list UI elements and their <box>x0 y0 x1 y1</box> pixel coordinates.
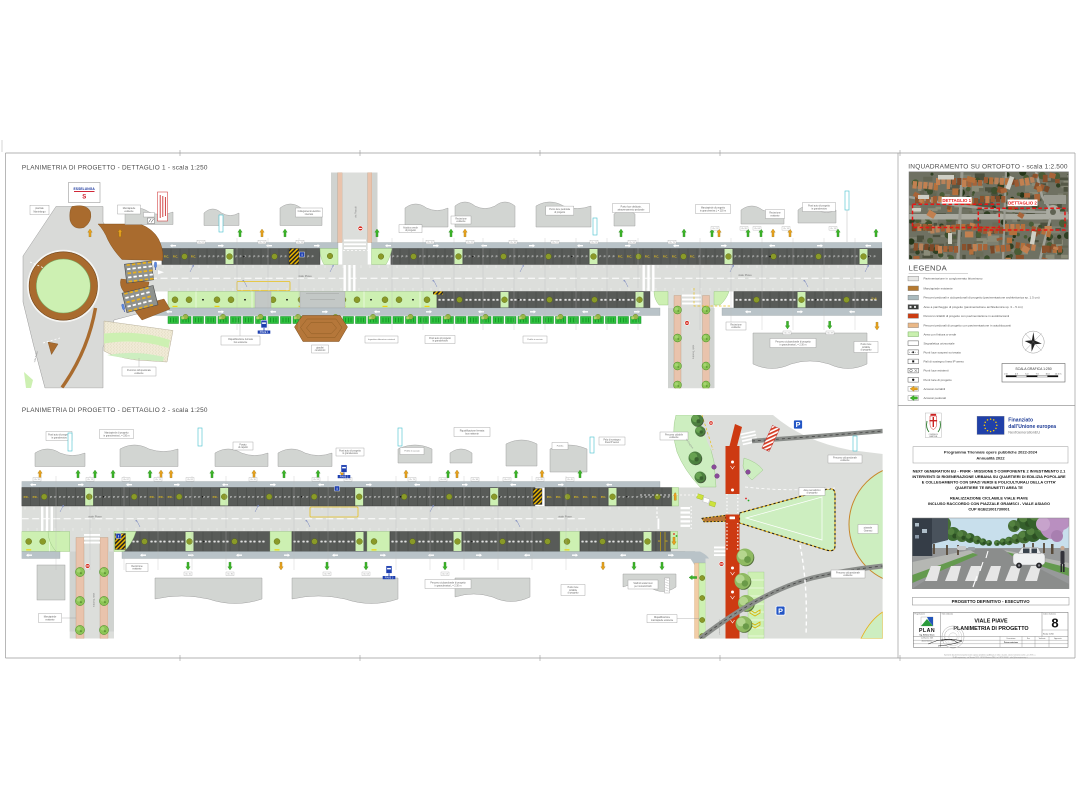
svg-text:Rev.: Rev. <box>1027 638 1031 640</box>
svg-text:P.C.: P.C. <box>24 495 29 499</box>
svg-text:P: P <box>199 255 201 259</box>
svg-text:Ch. 41: Ch. 41 <box>467 242 473 244</box>
svg-text:P: P <box>324 495 326 499</box>
svg-text:Titolo elaborato: Titolo elaborato <box>942 613 954 616</box>
svg-text:P: P <box>734 255 736 259</box>
svg-text:P: P <box>374 495 376 499</box>
svg-text:via Pascoli: via Pascoli <box>355 206 358 218</box>
svg-text:P: P <box>189 495 191 499</box>
svg-text:giardini: giardini <box>316 346 324 349</box>
svg-text:P: P <box>338 495 340 499</box>
svg-text:P: P <box>623 495 625 499</box>
svg-text:P: P <box>518 255 520 259</box>
svg-text:interrato: interrato <box>305 213 314 216</box>
svg-text:Posti auto di progetto: Posti auto di progetto <box>808 204 830 207</box>
svg-text:P: P <box>757 255 759 259</box>
svg-text:Finanziato: Finanziato <box>1008 418 1033 424</box>
svg-text:P: P <box>464 495 466 499</box>
svg-text:Punto luce: Punto luce <box>568 586 580 589</box>
svg-text:P: P <box>856 255 858 259</box>
svg-text:Ch. 81: Ch. 81 <box>187 479 193 481</box>
svg-text:Ch. 99: Ch. 99 <box>324 574 330 576</box>
svg-text:P: P <box>257 495 259 499</box>
svg-text:PROGETTO DEFINITIVO - ESECUTIV: PROGETTO DEFINITIVO - ESECUTIVO <box>952 599 1031 604</box>
svg-text:INQUADRAMENTO SU ORTOFOTO - sc: INQUADRAMENTO SU ORTOFOTO - scala 1:2.50… <box>908 164 1068 171</box>
svg-text:in granulessiva L = 2.30 m: in granulessiva L = 2.30 m <box>435 584 462 587</box>
svg-text:Ch. 63: Ch. 63 <box>440 479 446 481</box>
svg-text:P: P <box>365 495 367 499</box>
svg-text:P: P <box>851 255 853 259</box>
svg-text:P: P <box>144 495 146 499</box>
svg-text:P: P <box>796 420 801 429</box>
svg-text:Ch. 45: Ch. 45 <box>567 479 573 481</box>
svg-text:condomini: condomini <box>315 350 326 352</box>
svg-text:P: P <box>618 495 620 499</box>
svg-text:P: P <box>207 495 209 499</box>
svg-text:LEGENDA: LEGENDA <box>909 264 948 273</box>
svg-text:8: 8 <box>1051 616 1058 631</box>
svg-text:Riqualificazione fermata: Riqualificazione fermata <box>228 338 253 341</box>
svg-text:P: P <box>446 255 448 259</box>
svg-text:P: P <box>387 495 389 499</box>
svg-text:Percorso ciclopedonale: Percorso ciclopedonale <box>127 369 152 372</box>
svg-text:di progetto: di progetto <box>568 592 580 595</box>
svg-text:Ch. 64: Ch. 64 <box>754 228 760 230</box>
svg-text:Ch. 79: Ch. 79 <box>409 479 415 481</box>
svg-text:Ch. 96: Ch. 96 <box>629 242 635 244</box>
svg-text:P: P <box>279 495 281 499</box>
svg-text:P: P <box>59 495 61 499</box>
svg-text:piazzale: piazzale <box>864 527 873 529</box>
svg-text:P: P <box>240 255 242 259</box>
svg-text:i: i <box>118 533 119 538</box>
svg-text:P: P <box>833 255 835 259</box>
svg-text:P: P <box>788 255 790 259</box>
svg-text:o: o <box>958 633 959 635</box>
svg-text:Ing. Stefano Sauro: Ing. Stefano Sauro <box>920 633 935 636</box>
svg-text:P.C.: P.C. <box>164 255 169 259</box>
svg-text:P: P <box>829 255 831 259</box>
svg-text:esistente: esistente <box>456 220 466 223</box>
svg-text:P: P <box>423 495 425 499</box>
svg-text:P: P <box>432 495 434 499</box>
svg-text:PIAVE 2: PIAVE 2 <box>340 475 349 478</box>
svg-text:DETTAGLIO 2: DETTAGLIO 2 <box>1008 201 1037 206</box>
svg-text:P: P <box>522 495 524 499</box>
svg-text:P: P <box>369 495 371 499</box>
svg-text:P: P <box>401 255 403 259</box>
svg-text:o: o <box>945 635 946 637</box>
svg-text:Punto luce: Punto luce <box>861 343 873 346</box>
svg-text:esistente: esistente <box>669 436 679 439</box>
svg-text:P: P <box>320 495 322 499</box>
svg-text:P: P <box>608 255 610 259</box>
svg-text:P: P <box>532 255 534 259</box>
svg-text:Percorsi pedonali e ciclopedon: Percorsi pedonali e ciclopedonali di pro… <box>924 296 1040 300</box>
svg-text:di progetto: di progetto <box>554 211 566 214</box>
svg-text:ciclabile: ciclabile <box>569 590 578 592</box>
svg-text:P: P <box>599 255 601 259</box>
svg-text:Pali di sostegno linea IP aere: Pali di sostegno linea IP aereo <box>924 360 965 364</box>
svg-text:Riqualificazione fermata: Riqualificazione fermata <box>460 429 485 432</box>
svg-text:P: P <box>604 255 606 259</box>
svg-text:INTERVENTI DI RIGENERAZIONE UR: INTERVENTI DI RIGENERAZIONE URBANA SU QU… <box>912 474 1066 479</box>
svg-text:Posti auto di progetto: Posti auto di progetto <box>48 433 70 436</box>
svg-text:SCALA GRAFICA 1:250: SCALA GRAFICA 1:250 <box>1015 367 1051 371</box>
svg-text:Percorso ciclopedonale: Percorso ciclopedonale <box>833 456 858 459</box>
svg-text:P: P <box>239 495 241 499</box>
svg-text:Ch. 99: Ch. 99 <box>345 479 351 481</box>
svg-text:linea IP aereo: linea IP aereo <box>605 441 620 444</box>
svg-text:Marciapiede esistente: Marciapiede esistente <box>924 286 954 290</box>
svg-text:o: o <box>958 637 959 639</box>
svg-text:P: P <box>252 495 254 499</box>
svg-text:Pavimentazione in conglomerato: Pavimentazione in conglomerato bituminos… <box>924 277 983 281</box>
svg-text:P: P <box>496 255 498 259</box>
svg-text:P.C.: P.C. <box>601 495 606 499</box>
svg-text:P: P <box>234 495 236 499</box>
svg-text:Marciapiede di progetto: Marciapiede di progetto <box>104 431 129 434</box>
svg-text:Ch. 30: Ch. 30 <box>227 574 233 576</box>
svg-text:Annualità 2022: Annualità 2022 <box>976 455 1005 460</box>
svg-text:Marciapiede: Marciapiede <box>44 615 57 618</box>
svg-text:Ch. 21: Ch. 21 <box>784 333 790 335</box>
svg-text:esistente: esistente <box>132 568 142 571</box>
svg-text:o: o <box>958 635 959 637</box>
svg-text:12.5 m: 12.5 m <box>1055 373 1062 375</box>
svg-text:esistente: esistente <box>843 574 853 577</box>
svg-text:P: P <box>748 255 750 259</box>
svg-text:Profilo in acciaio: Profilo in acciaio <box>404 450 420 453</box>
svg-text:INCLUSO RACCORDO CON PIAZZALE: INCLUSO RACCORDO CON PIAZZALE GRAMSCI - … <box>928 501 1050 506</box>
svg-text:o: o <box>946 640 947 642</box>
svg-text:P: P <box>847 255 849 259</box>
svg-text:P.C.: P.C. <box>173 255 178 259</box>
svg-text:ciclabile: ciclabile <box>862 347 871 349</box>
svg-text:P.C.: P.C. <box>690 255 695 259</box>
svg-text:P: P <box>523 255 525 259</box>
svg-text:esistente: esistente <box>134 372 144 375</box>
svg-text:P: P <box>712 255 714 259</box>
svg-text:P: P <box>442 255 444 259</box>
svg-text:P: P <box>383 495 385 499</box>
svg-text:P: P <box>410 495 412 499</box>
svg-text:CUP I61B21001730001: CUP I61B21001730001 <box>968 507 1010 512</box>
svg-text:P: P <box>527 255 529 259</box>
svg-text:Posti auto di progetto: Posti auto di progetto <box>429 337 451 340</box>
svg-text:P: P <box>306 495 308 499</box>
svg-text:P: P <box>419 495 421 499</box>
svg-text:in granulessiva: in granulessiva <box>51 436 67 439</box>
svg-text:P: P <box>312 255 314 259</box>
svg-text:P: P <box>258 255 260 259</box>
svg-text:Ch. 67: Ch. 67 <box>504 479 510 481</box>
svg-text:Scala 1:250: Scala 1:250 <box>1043 633 1054 635</box>
svg-text:P: P <box>469 255 471 259</box>
svg-text:in granulessiva L = 230 m: in granulessiva L = 230 m <box>103 434 129 437</box>
svg-text:P: P <box>329 495 331 499</box>
svg-text:Ch. 74: Ch. 74 <box>87 479 93 481</box>
svg-text:P: P <box>275 495 277 499</box>
svg-text:Ch. 87: Ch. 87 <box>123 479 129 481</box>
svg-text:Ch. 85: Ch. 85 <box>537 479 543 481</box>
svg-text:Profilo in acciaio: Profilo in acciaio <box>527 338 543 341</box>
svg-text:viale Piave: viale Piave <box>558 515 572 519</box>
svg-text:P: P <box>716 255 718 259</box>
svg-text:P: P <box>824 255 826 259</box>
svg-text:P: P <box>482 255 484 259</box>
svg-text:Segnaletica orizzontale: Segnaletica orizzontale <box>924 341 955 345</box>
svg-text:P: P <box>577 255 579 259</box>
svg-text:P: P <box>581 255 583 259</box>
svg-text:Ch. 45: Ch. 45 <box>427 242 433 244</box>
svg-text:Percorsi pedonali di progetto: Percorsi pedonali di progetto con pavime… <box>924 323 1012 327</box>
svg-text:P: P <box>248 495 250 499</box>
svg-text:Ch. 21: Ch. 21 <box>712 228 718 230</box>
svg-text:P: P <box>117 495 119 499</box>
svg-text:Punto luce dedicato,: Punto luce dedicato, <box>621 205 642 208</box>
svg-text:P: P <box>455 495 457 499</box>
svg-text:P: P <box>437 495 439 499</box>
svg-text:via Mazzini, 1325: via Mazzini, 1325 <box>921 638 933 640</box>
svg-text:P.C.: P.C. <box>168 495 173 499</box>
svg-text:in granulessiva: in granulessiva <box>811 207 827 210</box>
svg-text:Percorso ciclopedonale: Percorso ciclopedonale <box>836 571 861 574</box>
svg-text:P: P <box>779 255 781 259</box>
svg-text:P: P <box>392 255 394 259</box>
svg-text:Recinzione: Recinzione <box>769 212 781 214</box>
svg-text:P.C.: P.C. <box>191 255 196 259</box>
svg-text:P: P <box>806 255 808 259</box>
svg-text:in granulessiva L = 230 m: in granulessiva L = 230 m <box>700 209 726 212</box>
svg-text:Ch. 10: Ch. 10 <box>185 574 191 576</box>
svg-text:Ch. 38: Ch. 38 <box>472 479 478 481</box>
svg-text:P: P <box>586 255 588 259</box>
svg-text:Percorso ciclopedonale di prog: Percorso ciclopedonale di progetto <box>775 340 811 343</box>
svg-text:P: P <box>217 255 219 259</box>
svg-text:esistente: esistente <box>731 326 741 329</box>
svg-text:P: P <box>797 255 799 259</box>
svg-text:P: P <box>464 255 466 259</box>
svg-text:P: P <box>743 255 745 259</box>
svg-text:P: P <box>95 495 97 499</box>
svg-text:P: P <box>63 495 65 499</box>
svg-text:P.C.: P.C. <box>583 495 588 499</box>
svg-text:P: P <box>108 495 110 499</box>
svg-text:P: P <box>414 495 416 499</box>
svg-text:P: P <box>347 495 349 499</box>
svg-text:Asse semaforico: Asse semaforico <box>804 489 822 492</box>
svg-text:esistente: esistente <box>770 214 780 217</box>
svg-text:P.C.: P.C. <box>547 495 552 499</box>
svg-text:DETTAGLIO 1: DETTAGLIO 1 <box>942 198 971 203</box>
svg-text:di progetto: di progetto <box>807 492 819 495</box>
svg-text:P: P <box>487 255 489 259</box>
svg-text:P: P <box>140 495 142 499</box>
svg-text:Collegamento elettrico: Collegamento elettrico <box>298 210 322 213</box>
svg-text:P: P <box>437 255 439 259</box>
svg-text:Marciapiede: Marciapiede <box>123 207 136 210</box>
svg-text:P: P <box>284 495 286 499</box>
svg-text:P: P <box>842 255 844 259</box>
svg-text:P.C.: P.C. <box>645 255 650 259</box>
svg-text:in granulessiva: in granulessiva <box>432 340 448 343</box>
svg-text:P.C.: P.C. <box>618 255 623 259</box>
svg-text:P: P <box>568 255 570 259</box>
svg-text:COMUNE DI: COMUNE DI <box>929 434 939 436</box>
svg-text:Ch. 24: Ch. 24 <box>259 242 265 244</box>
svg-text:bus esistente: bus esistente <box>234 341 248 344</box>
svg-text:P: P <box>473 495 475 499</box>
svg-text:o: o <box>957 640 958 642</box>
svg-text:PLANIMETRIA DI PROGETTO: PLANIMETRIA DI PROGETTO <box>953 626 1028 632</box>
svg-text:P: P <box>72 495 74 499</box>
svg-text:Ch. 37: Ch. 37 <box>827 333 833 335</box>
svg-text:P: P <box>81 495 83 499</box>
svg-text:Ch. 85: Ch. 85 <box>741 228 747 230</box>
svg-text:Posato: Posato <box>239 443 247 446</box>
svg-text:P: P <box>262 255 264 259</box>
svg-text:QUARTIERE TE BRUNETTI AREA TE: QUARTIERE TE BRUNETTI AREA TE <box>955 485 1023 490</box>
svg-text:o: o <box>945 637 946 639</box>
svg-text:Accessi pedonali: Accessi pedonali <box>924 396 947 400</box>
svg-text:dall’Unione europea: dall’Unione europea <box>1008 424 1056 430</box>
svg-text:P: P <box>204 255 206 259</box>
svg-text:P: P <box>126 495 128 499</box>
svg-text:Montelungo: Montelungo <box>33 210 46 213</box>
svg-text:E COLLEGAMENTO CON SPAZI V: E COLLEGAMENTO CON SPAZI VERDI E POLICUL… <box>922 479 1056 484</box>
svg-text:P: P <box>428 495 430 499</box>
svg-text:ESSELUNGA: ESSELUNGA <box>73 187 95 191</box>
svg-text:P: P <box>68 495 70 499</box>
svg-text:esistente: esistente <box>45 618 55 621</box>
svg-text:P: P <box>261 495 263 499</box>
svg-text:PLANIMETRIA DI PROGETTO - DETT: PLANIMETRIA DI PROGETTO - DETTAGLIO 1 - … <box>22 165 208 172</box>
svg-text:P: P <box>486 495 488 499</box>
svg-text:P: P <box>632 495 634 499</box>
svg-text:Ch. 23: Ch. 23 <box>591 242 597 244</box>
svg-text:P: P <box>396 495 398 499</box>
svg-text:P: P <box>392 495 394 499</box>
svg-text:Punti luce sospesi su tesata: Punti luce sospesi su tesata <box>924 350 962 354</box>
svg-text:Programma Triennale opere pubb: Programma Triennale opere pubbliche 2022… <box>944 449 1038 454</box>
svg-text:Ch. 64: Ch. 64 <box>363 574 369 576</box>
svg-text:P: P <box>113 495 115 499</box>
svg-text:2+6: 2+6 <box>871 297 877 301</box>
svg-text:Punti luce esistenti: Punti luce esistenti <box>924 369 949 373</box>
svg-text:o: o <box>950 642 951 644</box>
svg-text:P: P <box>509 495 511 499</box>
svg-text:P: P <box>477 495 479 499</box>
svg-text:marciapiede esistente: marciapiede esistente <box>651 619 674 622</box>
svg-text:Marciapiede di progetto: Marciapiede di progetto <box>701 206 726 209</box>
svg-text:Ingombro alberature esistenti: Ingombro alberature esistenti <box>368 338 395 341</box>
svg-text:P: P <box>297 495 299 499</box>
svg-text:P: P <box>784 255 786 259</box>
svg-text:P: P <box>280 255 282 259</box>
svg-text:P: P <box>766 255 768 259</box>
svg-text:PLANIMETRIA DI PROGETTO - DETT: PLANIMETRIA DI PROGETTO - DETTAGLIO 2 - … <box>22 407 208 414</box>
svg-text:viale Trentino: viale Trentino <box>92 593 95 608</box>
svg-text:Ch. 93: Ch. 93 <box>313 479 319 481</box>
svg-text:P: P <box>802 255 804 259</box>
svg-text:Ch. 91: Ch. 91 <box>198 242 204 244</box>
svg-text:P: P <box>811 255 813 259</box>
svg-text:P: P <box>636 495 638 499</box>
svg-text:P: P <box>208 255 210 259</box>
svg-text:P: P <box>397 255 399 259</box>
svg-text:P: P <box>527 495 529 499</box>
svg-text:bus esistente: bus esistente <box>465 432 479 435</box>
svg-text:S: S <box>82 195 86 201</box>
svg-text:Ch. 79: Ch. 79 <box>669 242 675 244</box>
svg-text:P: P <box>504 495 506 499</box>
svg-text:P: P <box>253 255 255 259</box>
svg-text:Ch. 27: Ch. 27 <box>552 242 558 244</box>
svg-text:P: P <box>468 495 470 499</box>
svg-text:Ch. 39: Ch. 39 <box>34 479 40 481</box>
svg-text:Percorso ciclopedonale di prog: Percorso ciclopedonale di progetto <box>430 581 466 584</box>
svg-text:P: P <box>778 606 783 615</box>
svg-text:Descrizione: Descrizione <box>1007 637 1016 640</box>
svg-text:Ch. 13: Ch. 13 <box>297 242 303 244</box>
svg-text:P: P <box>249 255 251 259</box>
svg-text:NextGenerationEU: NextGenerationEU <box>1008 431 1040 435</box>
svg-text:P: P <box>874 255 876 259</box>
svg-text:P: P <box>378 495 380 499</box>
svg-text:P: P <box>230 495 232 499</box>
svg-text:P: P <box>752 255 754 259</box>
svg-text:Percorso ciclabile: Percorso ciclabile <box>665 433 684 436</box>
svg-text:P.C.: P.C. <box>213 495 218 499</box>
svg-text:Palo di sostegno: Palo di sostegno <box>604 438 622 441</box>
svg-text:Area con finitura a verde: Area con finitura a verde <box>924 332 957 336</box>
svg-text:P: P <box>243 495 245 499</box>
svg-text:P: P <box>122 495 124 499</box>
svg-text:P.C.: P.C. <box>654 255 659 259</box>
svg-text:P: P <box>307 255 309 259</box>
svg-text:P: P <box>563 255 565 259</box>
svg-text:P: P <box>509 255 511 259</box>
svg-text:in granulessiva L = 2.30 m: in granulessiva L = 2.30 m <box>780 343 807 346</box>
svg-text:P.C.: P.C. <box>556 495 561 499</box>
svg-text:o: o <box>950 629 951 631</box>
svg-text:Ch. 35: Ch. 35 <box>250 479 256 481</box>
svg-text:P: P <box>707 255 709 259</box>
svg-text:P: P <box>267 255 269 259</box>
svg-text:viale Piave: viale Piave <box>298 274 312 278</box>
svg-text:P: P <box>703 255 705 259</box>
svg-text:P: P <box>194 495 196 499</box>
svg-text:P: P <box>491 255 493 259</box>
svg-text:in granulessiva: in granulessiva <box>342 452 358 455</box>
svg-text:NEXT GENERATION EU - PNRR - MI: NEXT GENERATION EU - PNRR - MISSIONE 5 C… <box>913 468 1067 473</box>
svg-text:i: i <box>301 252 302 257</box>
svg-text:Percorsi ciclabili di progetto: Percorsi ciclabili di progetto con pavim… <box>924 314 1010 318</box>
svg-text:P: P <box>222 255 224 259</box>
svg-text:P: P <box>482 495 484 499</box>
svg-text:di progetto: di progetto <box>861 349 873 352</box>
svg-text:Ch. 13: Ch. 13 <box>155 479 161 481</box>
svg-text:P: P <box>478 255 480 259</box>
svg-text:P: P <box>459 495 461 499</box>
svg-text:P: P <box>50 495 52 499</box>
svg-text:0 m: 0 m <box>1004 373 1008 375</box>
svg-text:REALIZZAZIONE CICLABILE VIALE: REALIZZAZIONE CICLABILE VIALE PIAVE <box>950 496 1028 501</box>
svg-text:P: P <box>406 255 408 259</box>
svg-text:P: P <box>428 255 430 259</box>
svg-text:P: P <box>424 255 426 259</box>
